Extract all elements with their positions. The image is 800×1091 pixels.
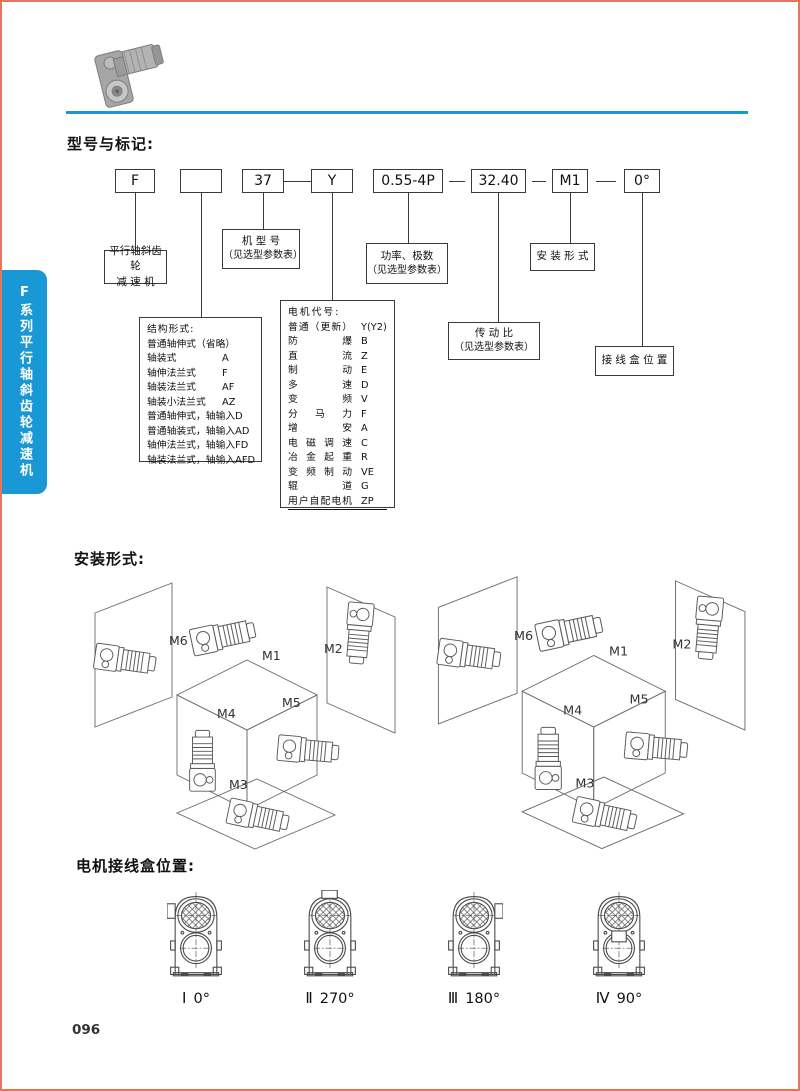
label-m4: M4 bbox=[217, 706, 236, 721]
structure-form-name: 轴装小法兰式 bbox=[147, 396, 222, 411]
drop-line-series bbox=[135, 193, 136, 250]
terminal-section-title: 电机接线盒位置: bbox=[76, 855, 195, 876]
code-box-ratio: 32.40 bbox=[471, 169, 526, 193]
structure-form-name: 轴伸法兰式 bbox=[147, 367, 222, 382]
terminal-position-label: Ⅲ 180° bbox=[439, 989, 509, 1007]
callout-terminal: 接 线 盒 位 置 bbox=[595, 346, 674, 376]
motor-code-name: 增安 bbox=[288, 422, 352, 437]
junction-box bbox=[495, 904, 503, 919]
drop-line-mounting bbox=[570, 193, 571, 243]
motor-code-name: 辊道 bbox=[288, 480, 352, 495]
structure-form-name: 轴伸法兰式，轴输入 bbox=[147, 439, 235, 454]
terminal-position-label: Ⅱ 270° bbox=[295, 989, 365, 1007]
catalog-page: F系列平行轴斜齿轮减速机 型号与标记: F 37 Y 0.55-4P 32.40… bbox=[0, 0, 800, 1091]
callout-reducer-line2: 减 速 机 bbox=[116, 275, 154, 290]
structure-form-row: 轴伸法兰式 F bbox=[147, 367, 254, 382]
connector-37-Y bbox=[284, 181, 311, 182]
junction-box bbox=[322, 890, 337, 898]
mounting-diagram-right bbox=[420, 558, 747, 850]
structure-form-row: 轴伸法兰式，轴输入 FD bbox=[147, 439, 254, 454]
structure-form-title: 结构形式: bbox=[147, 323, 254, 338]
structure-form-row: 轴装法兰式，轴输入 AFD bbox=[147, 454, 254, 469]
motor-code-name: 防爆 bbox=[288, 335, 352, 350]
structure-form-code: D bbox=[235, 410, 254, 425]
motor-m6 bbox=[93, 643, 157, 677]
terminal-position-label: Ⅰ 0° bbox=[161, 989, 231, 1007]
series-label: F系列平行轴斜齿轮减速机 bbox=[18, 285, 31, 479]
motor-code-row: 防爆 B bbox=[288, 335, 387, 350]
callout-power-line2: （见选型参数表） bbox=[367, 264, 447, 279]
motor-m3 bbox=[226, 798, 291, 836]
label-m6: M6 bbox=[169, 633, 188, 648]
motor-code-code: D bbox=[361, 379, 369, 394]
structure-form-row: 轴装式 A bbox=[147, 352, 254, 367]
label-m5: M5 bbox=[282, 695, 301, 710]
code-box-size: 37 bbox=[242, 169, 284, 193]
motor-code-code: F bbox=[361, 408, 367, 423]
motor-code-code: B bbox=[361, 335, 368, 350]
callout-ratio-line2: （见选型参数表） bbox=[454, 341, 534, 356]
motor-code-code: Y(Y2) bbox=[361, 321, 387, 336]
callout-reducer: 平行轴斜齿轮 减 速 机 bbox=[104, 250, 167, 284]
callout-mounting: 安 装 形 式 bbox=[530, 243, 595, 271]
motor-code-code: G bbox=[361, 480, 369, 495]
header-divider bbox=[66, 111, 748, 114]
motor-code-code: C bbox=[361, 437, 368, 452]
motor-code-box: 电机代号: 普通（更新） Y(Y2) 防爆 B 直流 Z 制动 E 多速 bbox=[280, 300, 395, 508]
drop-line-terminal bbox=[642, 193, 643, 346]
structure-form-code: AFD bbox=[235, 454, 255, 469]
motor-code-name: 变频制动 bbox=[288, 466, 352, 481]
motor-code-code: A bbox=[361, 422, 368, 437]
drop-line-motor bbox=[332, 193, 333, 300]
callout-model-no: 机 型 号 （见选型参数表） bbox=[222, 229, 300, 269]
structure-form-row: 普通轴伸式（省略） bbox=[147, 338, 254, 353]
code-box-motor: Y bbox=[311, 169, 353, 193]
motor-code-name: 直流 bbox=[288, 350, 352, 365]
motor-code-name: 多速 bbox=[288, 379, 352, 394]
drop-line-power bbox=[408, 193, 409, 243]
position-angle: 0° bbox=[193, 991, 209, 1007]
dash-power-ratio bbox=[449, 181, 465, 182]
structure-form-row: 轴装法兰式 AF bbox=[147, 381, 254, 396]
structure-form-name: 轴装法兰式，轴输入 bbox=[147, 454, 235, 469]
terminal-motor-figure bbox=[445, 890, 503, 981]
drop-line-structure bbox=[201, 193, 202, 317]
drop-line-ratio bbox=[498, 193, 499, 322]
label-m2: M2 bbox=[324, 641, 343, 656]
motor-code-row: 增安 A bbox=[288, 422, 387, 437]
mounting-diagram-left: M6 M1 M2 M4 M5 M3 bbox=[77, 565, 397, 850]
position-numeral: Ⅰ bbox=[182, 989, 186, 1007]
junction-box bbox=[612, 931, 627, 942]
gear-motor-photo bbox=[87, 36, 169, 110]
position-numeral: Ⅱ bbox=[305, 989, 312, 1007]
structure-form-code: F bbox=[222, 367, 254, 382]
motor-code-row: 变频 V bbox=[288, 393, 387, 408]
motor-code-code: E bbox=[361, 364, 367, 379]
motor-m1 bbox=[189, 616, 257, 656]
structure-form-row: 普通轴伸式，轴输入 D bbox=[147, 410, 254, 425]
callout-reducer-line1: 平行轴斜齿轮 bbox=[105, 244, 166, 274]
motor-code-code: R bbox=[361, 451, 368, 466]
motor-code-row: 制动 E bbox=[288, 364, 387, 379]
label-m3: M3 bbox=[229, 777, 248, 792]
motor-code-name: 制动 bbox=[288, 364, 352, 379]
code-box-series: F bbox=[115, 169, 155, 193]
callout-ratio-line1: 传 动 比 bbox=[475, 326, 513, 341]
motor-code-row: 变频制动 VE bbox=[288, 466, 387, 481]
structure-form-code: FD bbox=[235, 439, 254, 454]
motor-m4 bbox=[190, 730, 216, 791]
structure-form-row: 轴装小法兰式 AZ bbox=[147, 396, 254, 411]
motor-code-name: 普通（更新） bbox=[288, 321, 352, 336]
motor-code-code: Z bbox=[361, 350, 368, 365]
structure-form-name: 普通轴伸式（省略） bbox=[147, 338, 235, 353]
model-section-title: 型号与标记: bbox=[67, 133, 154, 154]
structure-form-name: 普通轴装式，轴输入 bbox=[147, 425, 235, 440]
structure-form-name: 轴装法兰式 bbox=[147, 381, 222, 396]
callout-model-no-line1: 机 型 号 bbox=[242, 234, 280, 249]
motor-code-name: 电磁调速 bbox=[288, 437, 352, 452]
drop-line-size bbox=[263, 193, 264, 229]
terminal-motor-figure bbox=[167, 890, 225, 981]
callout-model-no-line2: （见选型参数表） bbox=[223, 249, 299, 264]
code-box-mounting: M1 bbox=[552, 169, 588, 193]
motor-code-name: 变频 bbox=[288, 393, 352, 408]
position-numeral: Ⅳ bbox=[596, 989, 610, 1007]
motor-code-code: ZP bbox=[361, 495, 374, 510]
motor-code-row: 直流 Z bbox=[288, 350, 387, 365]
motor-code-row: 冶金起重 R bbox=[288, 451, 387, 466]
motor-code-title: 电机代号: bbox=[288, 306, 387, 321]
callout-ratio: 传 动 比 （见选型参数表） bbox=[448, 322, 540, 360]
page-number: 096 bbox=[72, 1022, 100, 1038]
code-box-terminal: 0° bbox=[624, 169, 660, 193]
motor-code-name: 用户自配电机 bbox=[288, 495, 352, 510]
motor-code-code: VE bbox=[361, 466, 374, 481]
motor-code-code: V bbox=[361, 393, 368, 408]
callout-power: 功率、极数 （见选型参数表） bbox=[366, 243, 448, 284]
code-box-structure bbox=[180, 169, 222, 193]
motor-code-name: 冶金起重 bbox=[288, 451, 352, 466]
dash-ratio-m1 bbox=[532, 181, 546, 182]
position-angle: 180° bbox=[465, 991, 500, 1007]
position-angle: 270° bbox=[320, 991, 355, 1007]
callout-terminal-line1: 接 线 盒 位 置 bbox=[602, 353, 668, 368]
motor-code-row: 电磁调速 C bbox=[288, 437, 387, 452]
motor-m2 bbox=[343, 602, 374, 665]
motor-code-row: 分马力 F bbox=[288, 408, 387, 423]
structure-form-code: AF bbox=[222, 381, 254, 396]
dash-m1-angle bbox=[596, 181, 616, 182]
motor-code-row: 多速 D bbox=[288, 379, 387, 394]
callout-mounting-line1: 安 装 形 式 bbox=[536, 249, 588, 264]
code-box-power: 0.55-4P bbox=[373, 169, 443, 193]
motor-code-row: 用户自配电机 ZP bbox=[288, 495, 387, 511]
structure-form-name: 轴装式 bbox=[147, 352, 222, 367]
structure-form-code: A bbox=[222, 352, 254, 367]
position-angle: 90° bbox=[617, 991, 643, 1007]
label-m1: M1 bbox=[262, 648, 281, 663]
structure-form-box: 结构形式: 普通轴伸式（省略） 轴装式 A 轴伸法兰式 F 轴装法兰式 AF bbox=[139, 317, 262, 462]
terminal-motor-figure bbox=[301, 890, 359, 981]
terminal-motor-figure bbox=[590, 890, 648, 981]
structure-form-row: 普通轴装式，轴输入 AD bbox=[147, 425, 254, 440]
motor-m5 bbox=[277, 735, 340, 766]
structure-form-name: 普通轴伸式，轴输入 bbox=[147, 410, 235, 425]
position-numeral: Ⅲ bbox=[448, 989, 458, 1007]
structure-form-code: AD bbox=[235, 425, 254, 440]
motor-code-name: 分马力 bbox=[288, 408, 352, 423]
callout-power-line1: 功率、极数 bbox=[381, 249, 434, 264]
motor-code-row: 普通（更新） Y(Y2) bbox=[288, 321, 387, 336]
motor-code-row: 辊道 G bbox=[288, 480, 387, 495]
junction-box bbox=[167, 904, 175, 919]
terminal-position-label: Ⅳ 90° bbox=[584, 989, 654, 1007]
structure-form-code: AZ bbox=[222, 396, 254, 411]
series-sidebar-tab: F系列平行轴斜齿轮减速机 bbox=[2, 270, 47, 494]
